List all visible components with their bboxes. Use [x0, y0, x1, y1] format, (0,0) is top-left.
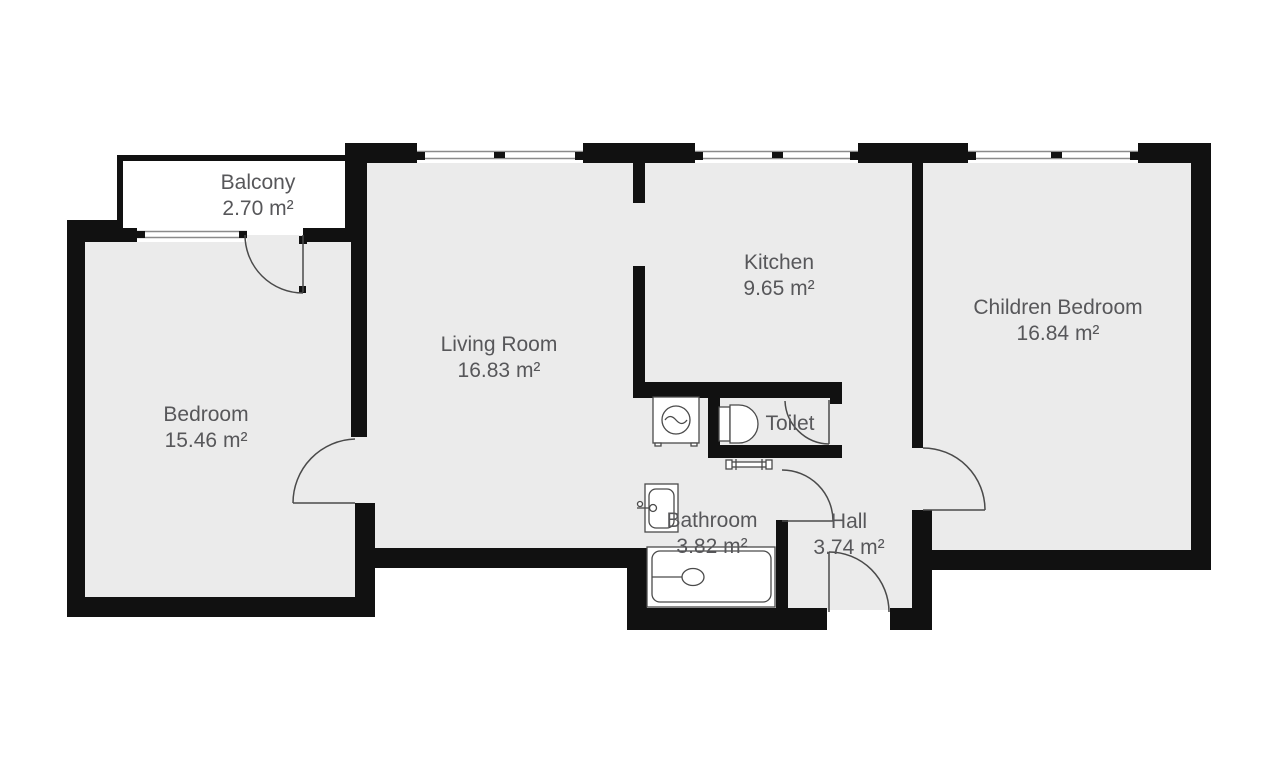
- toilet-bowl-icon: [719, 405, 758, 443]
- balcony-floor: [122, 161, 345, 228]
- living-room-window: [417, 143, 583, 163]
- children-bedroom-floor: [918, 150, 1195, 555]
- bedroom-balcony-window: [137, 228, 247, 242]
- children-bedroom-window: [968, 143, 1138, 163]
- bedroom-floor: [75, 235, 363, 613]
- living-room-floor: [358, 150, 643, 560]
- bathtub-icon: [647, 547, 775, 607]
- hall-corridor-floor: [838, 388, 920, 458]
- washing-machine-icon: [653, 397, 699, 446]
- kitchen-floor: [640, 150, 918, 390]
- kitchen-window: [695, 143, 858, 163]
- floor-plan-canvas: [0, 0, 1278, 778]
- floor-plan: Balcony 2.70 m² Bedroom 15.46 m² Living …: [0, 0, 1278, 778]
